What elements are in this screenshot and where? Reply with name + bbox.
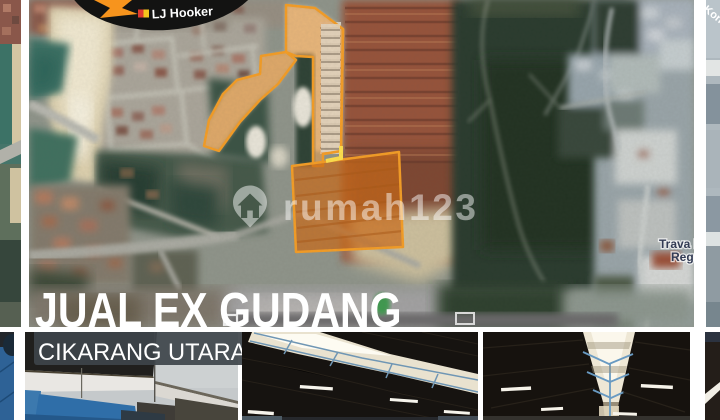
svg-text:rumah123: rumah123: [283, 187, 479, 228]
svg-text:Regal: Regal: [671, 250, 694, 264]
svg-text:Trava Bu: Trava Bu: [659, 237, 694, 251]
